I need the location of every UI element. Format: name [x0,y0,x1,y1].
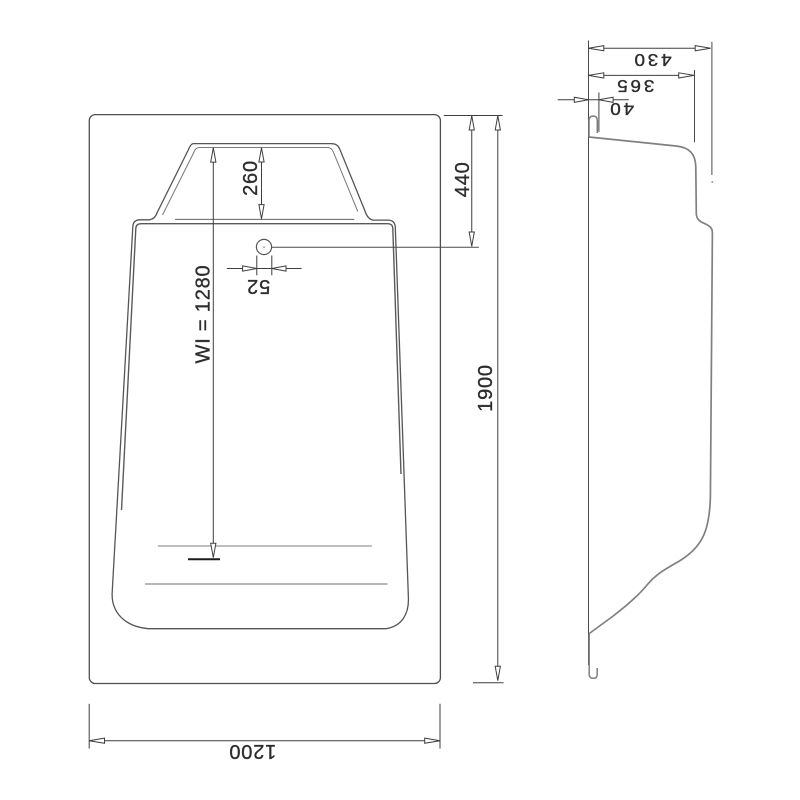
svg-text:40: 40 [607,99,634,118]
svg-text:365: 365 [614,76,654,95]
svg-text:440: 440 [452,161,474,197]
svg-text:52: 52 [246,275,270,297]
svg-text:1200: 1200 [229,740,277,762]
svg-text:430: 430 [632,50,672,69]
svg-text:1900: 1900 [475,364,497,412]
svg-text:WI = 1280: WI = 1280 [193,265,215,364]
svg-text:260: 260 [240,160,262,196]
